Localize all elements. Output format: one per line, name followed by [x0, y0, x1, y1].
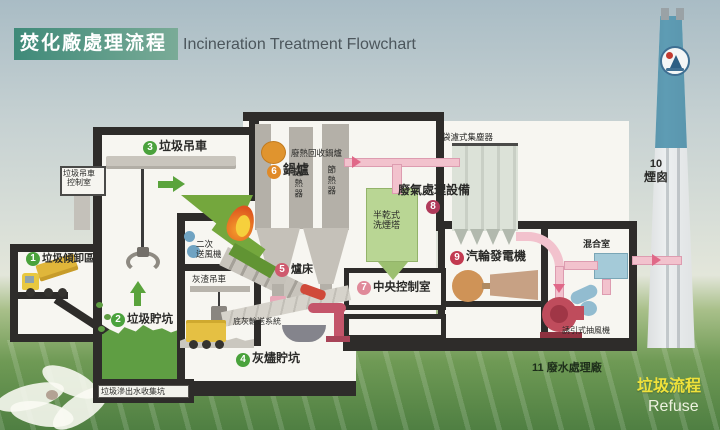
ash-crane-beam [190, 286, 250, 292]
wall-right-wing [629, 221, 637, 348]
station-11-text: 廢水處理廠 [547, 362, 602, 374]
steam-drum-icon [261, 141, 286, 164]
station-7-badge: 7 [357, 281, 371, 295]
label-leachate-pit: 垃圾滲出水收集坑 [101, 387, 165, 396]
label-crane-control-room: 垃圾吊車 控制室 [63, 169, 95, 187]
grapple-claw-hub [137, 247, 149, 257]
label-garbage-crane: 3垃圾吊車 [143, 140, 207, 155]
label-bottom-ash-conveyor: 底灰輸送系統 [233, 317, 281, 326]
station-9-badge: 9 [450, 251, 464, 265]
station-1-badge: 1 [26, 252, 40, 266]
station-11-number: 11 [532, 362, 544, 374]
label-wastewater-plant: 11 廢水處理廠 [532, 362, 602, 375]
station-4-badge: 4 [236, 353, 250, 367]
flue-pipe-to-mixer [564, 261, 598, 270]
turbine-generator-icon [452, 270, 484, 302]
unload-box-top [10, 244, 102, 252]
station-1-text: 垃圾傾卸區 [42, 252, 95, 264]
label-grate: 5爐床 [275, 263, 313, 277]
crane-cable [141, 169, 144, 253]
scrubber-line1: 半乾式 [373, 210, 400, 220]
label-ash-crane: 灰渣吊車 [192, 275, 226, 285]
logo-wave-icon [666, 68, 684, 71]
station-2-badge: 2 [111, 313, 125, 327]
label-mixing-chamber: 混合室 [583, 239, 610, 249]
station-3-text: 垃圾吊車 [159, 139, 207, 153]
unload-box-right [94, 244, 102, 298]
legend-refuse-zh: 垃圾流程 [637, 378, 701, 396]
flow-arrow-up-icon [134, 292, 141, 306]
label-unload-area: 1垃圾傾卸區 [26, 252, 95, 266]
station-2-text: 垃圾貯坑 [127, 313, 173, 325]
ash-truck-icon [186, 320, 226, 342]
flower-center [46, 390, 58, 400]
roof-center [243, 112, 444, 121]
crane-control-line2: 控制室 [63, 178, 95, 187]
roof-crane-hall [93, 127, 250, 135]
boiler-wall [344, 124, 349, 230]
station-6-badge: 6 [267, 165, 281, 179]
page-title-zh: 焚化廠處理流程 [20, 33, 167, 55]
station-8-text: 廢氣處理設備 [398, 184, 470, 198]
flue-pipe-top [344, 158, 460, 167]
page-title-en: Incineration Treatment Flowchart [183, 36, 416, 54]
label-scrubber: 半乾式 洗煙塔 [373, 210, 400, 231]
label-ash-storage-pit: 4灰燼貯坑 [236, 352, 300, 367]
ash-truck-wheel [215, 340, 224, 349]
label-turbine-generator: 9汽輪發電機 [450, 250, 526, 265]
logo-sun-icon [666, 52, 673, 59]
falling-waste-bit [104, 314, 111, 320]
crane-rail-beam [106, 156, 236, 169]
waste-pile [102, 325, 177, 379]
ash-truck-wheel [189, 340, 198, 349]
turbine-cone [490, 270, 538, 300]
dump-truck-window [25, 276, 34, 283]
station-4-text: 灰燼貯坑 [252, 351, 300, 365]
truck-wheel [26, 288, 35, 297]
crane-control-line1: 垃圾吊車 [63, 169, 95, 178]
legend-refuse-en: Refuse [648, 398, 699, 416]
label-chimney: 10 煙囪 [644, 158, 668, 184]
mixer-down-pipe [602, 279, 611, 295]
chimney-cap [661, 8, 669, 20]
scrubber-line2: 洗煙塔 [373, 220, 400, 230]
label-induced-draft-fan: 誘引式抽風機 [562, 326, 610, 335]
station-3-badge: 3 [143, 141, 157, 155]
ash-truck-wheel [202, 340, 211, 349]
flue-arrow-right [352, 156, 361, 168]
falling-waste-bit [98, 326, 105, 332]
station-10-text: 煙囪 [644, 171, 668, 185]
truck-wheel [58, 288, 67, 297]
flue-arrow-down [553, 284, 565, 293]
crane-control-pillar [74, 194, 90, 230]
ash-unloader-post [334, 308, 344, 338]
label-gas-treatment: 廢氣處理設備 8 [398, 184, 470, 214]
label-heat-recovery-boiler: 廢熱回收鍋爐 [291, 149, 342, 159]
flowchart-sign: 焚化廠處理流程 Incineration Treatment Flowchart… [0, 0, 720, 430]
lower-room-box [344, 314, 446, 340]
flow-arrow-right-head [173, 176, 185, 192]
label-economizer: 節熱器 [326, 165, 336, 197]
flow-arrow-right-icon [158, 181, 173, 188]
flow-arrow-up-head [130, 281, 146, 293]
label-secondary-fan: 二次 送風機 [196, 240, 222, 260]
induced-fan-hub [550, 305, 568, 323]
turbine-room-divider [438, 301, 548, 307]
chimney-cap [676, 8, 684, 20]
secondary-fan-icon [184, 231, 195, 242]
plant-logo [660, 46, 690, 76]
falling-waste-bit [96, 302, 103, 308]
station-9-text: 汽輪發電機 [466, 249, 526, 263]
secondary-fan-line2: 送風機 [196, 250, 222, 260]
station-5-text: 爐床 [291, 263, 313, 275]
mixing-chamber-box [594, 253, 628, 279]
label-bag-filter: 袋濾式集塵器 [442, 133, 493, 143]
label-storage-pit: 2垃圾貯坑 [111, 313, 173, 327]
stack-arrow-right [652, 254, 661, 266]
station-5-badge: 5 [275, 263, 289, 277]
ash-pit-bottom-band [174, 381, 356, 396]
unload-box-bottom [10, 334, 102, 342]
station-10-number: 10 [644, 158, 668, 171]
label-superheater: 過熱器 [293, 168, 303, 200]
label-control-room: 7中央控制室 [357, 281, 431, 295]
station-8-badge: 8 [426, 200, 440, 214]
ash-unloader-base [326, 336, 350, 342]
station-7-text: 中央控制室 [373, 281, 431, 293]
truck-wheel [44, 288, 53, 297]
